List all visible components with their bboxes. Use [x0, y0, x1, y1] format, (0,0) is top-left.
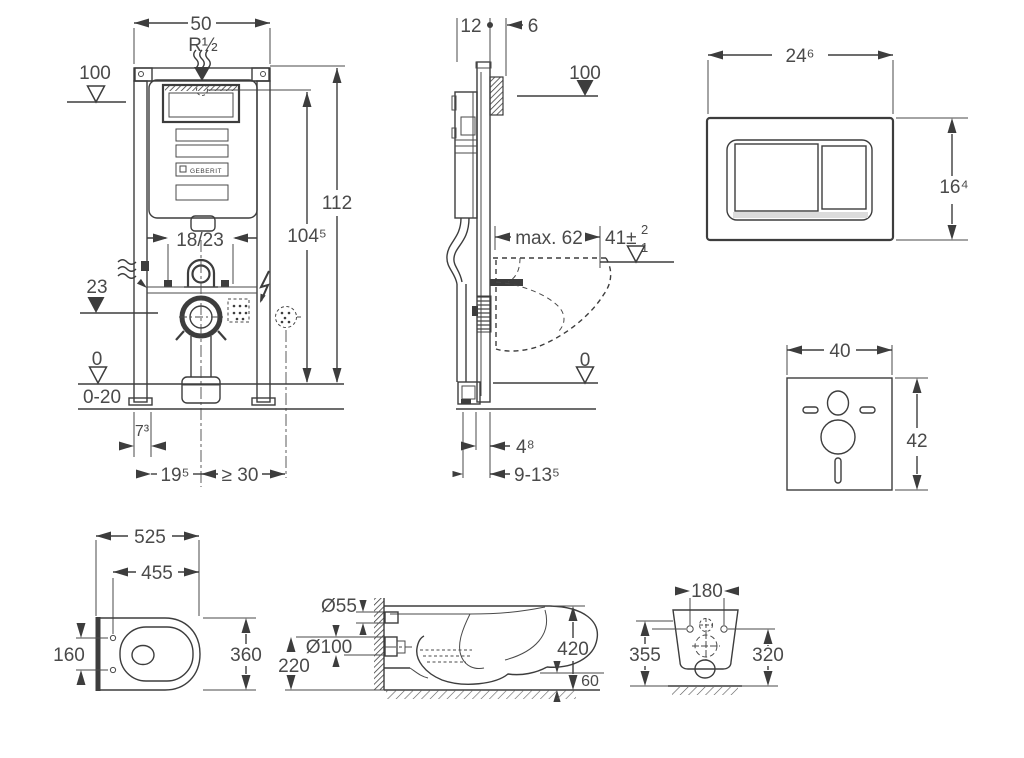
level-supply-front: 100	[67, 63, 126, 102]
dim-mat-height: 42	[895, 378, 928, 490]
flush-button-small	[822, 146, 866, 209]
level-marker-filled-icon	[88, 297, 105, 313]
total-height-label: 112	[322, 193, 352, 214]
mat-center-cutout	[821, 420, 855, 454]
dim-mat-width: 40	[787, 341, 892, 375]
dim-rear-holes: 180	[675, 581, 739, 625]
mat-width-label: 40	[829, 341, 850, 362]
threaded-rod	[477, 296, 491, 332]
dim-rear-left-height: 355	[629, 621, 668, 686]
level-marker-open-icon	[88, 86, 105, 102]
rear-bolt-hole	[687, 626, 693, 632]
bowl-trap-opening	[132, 646, 154, 665]
floor-gap-label: 60	[581, 673, 599, 690]
bowl-width-label: 360	[230, 645, 262, 666]
supply-thread-label: R½	[188, 35, 218, 56]
dim-outlet-offset: 19⁵	[136, 465, 216, 486]
rear-left-height-label: 355	[629, 645, 661, 666]
frame-side-view: 12 6	[447, 16, 674, 486]
level-marker-open-icon	[90, 367, 107, 383]
level-marker-open-icon	[577, 367, 594, 383]
clearance-label: ≥ 30	[222, 465, 259, 486]
bowl-depth-label: 525	[134, 527, 166, 548]
fixation-point-mark	[228, 299, 249, 322]
seat-bolt-hole	[110, 635, 115, 640]
socket-position-mark	[276, 307, 302, 328]
concealed-cistern: GEBERIT	[149, 80, 257, 231]
dim-pipe-range: 9-13⁵	[453, 465, 560, 486]
floor-hatch	[386, 690, 576, 699]
mat-top-cutout	[828, 391, 849, 415]
dim-rear-right-height: 320	[742, 629, 784, 686]
rear-inlet-mark	[699, 618, 713, 632]
rear-right-height-label: 320	[752, 645, 784, 666]
inner-height-label: 104⁵	[287, 226, 327, 247]
bowl-side-view: Ø55 Ø100 220 420	[278, 596, 604, 702]
dim-rim-height: 41± 2 1	[600, 222, 674, 262]
dim-foot-depth: 7³	[119, 412, 166, 457]
dim-seat-depth: 455	[113, 563, 199, 634]
pipe-range-label: 9-13⁵	[514, 465, 560, 486]
level-marker-filled-icon	[577, 80, 594, 96]
level-supply-side: 100	[517, 63, 601, 96]
bowl-outline-dashed	[493, 258, 611, 351]
floor-range-label: 0-20	[83, 387, 121, 408]
outlet-connector	[385, 637, 397, 656]
rear-holes-label: 180	[691, 581, 723, 602]
pipe-offset-label: 4⁸	[516, 437, 535, 458]
max-width-label: max. 62	[515, 228, 583, 249]
dim-flush-offset: 18/23	[147, 230, 257, 284]
plate-width-label: 24⁶	[786, 46, 815, 67]
dim-plate-height: 16⁴	[896, 118, 969, 240]
rear-bolt-hole	[721, 626, 727, 632]
rear-outlet-mark	[692, 632, 720, 660]
brand-label: GEBERIT	[190, 168, 222, 175]
seat-bolt-hole	[110, 667, 115, 672]
flush-button-large	[735, 144, 818, 211]
dim-max-width: max. 62	[495, 226, 600, 268]
bowl-height-label: 420	[557, 639, 589, 660]
seat-holes-label: 160	[53, 645, 85, 666]
plate-height-label: 16⁴	[939, 177, 968, 198]
frame-width-label: 50	[190, 14, 211, 35]
frame-rail-side	[458, 62, 503, 404]
bowl-top-body	[97, 618, 200, 690]
dim-total-height: 112	[270, 66, 352, 383]
mat-height-label: 42	[906, 431, 927, 452]
mat-body	[787, 378, 892, 490]
frame-front-view: 50 R½ 100	[67, 14, 352, 487]
foot-depth-label: 7³	[135, 423, 150, 440]
installation-dimension-drawing: 50 R½ 100	[0, 0, 1024, 758]
bowl-seat-opening	[120, 627, 193, 681]
mat-left-slot	[803, 407, 818, 413]
dim-frame-depth: 12 6	[457, 16, 538, 76]
insulation-mat-view: 40 42	[787, 341, 928, 490]
dim-bowl-width: 360	[203, 618, 262, 690]
electrical-connection-icon	[257, 271, 269, 304]
cistern-side	[447, 92, 477, 382]
outlet-height-label: 220	[278, 656, 310, 677]
inlet-label: Ø55	[321, 596, 357, 617]
mounting-bracket	[490, 279, 523, 286]
rear-floor-hatch	[672, 687, 738, 695]
outlet-level-label: 23	[86, 277, 107, 298]
outlet-offset-label: 19⁵	[160, 465, 189, 486]
technical-drawing-page: 50 R½ 100	[0, 0, 1024, 758]
bowl-rear-view: 180 355	[629, 581, 784, 695]
front-offset-label: 6	[528, 16, 539, 37]
supply-fitting	[164, 260, 229, 287]
dim-plate-width: 24⁶	[708, 46, 893, 114]
flush-plate-recess	[727, 140, 872, 220]
mat-bottom-slot	[835, 458, 841, 483]
dim-inner-height: 104⁵	[287, 92, 327, 383]
wall-anchor-plate	[490, 77, 503, 115]
bowl-top-view: 525 455 160 360	[53, 527, 262, 691]
frame-depth-label: 12	[460, 16, 481, 37]
flow-direction-icon	[194, 67, 210, 81]
rim-tol-plus-label: 2	[641, 222, 648, 237]
supply-level-label: 100	[79, 63, 111, 84]
flush-offset-label: 18/23	[176, 230, 224, 251]
mat-right-slot	[860, 407, 875, 413]
flush-plate-view: 24⁶ 16⁴	[707, 46, 969, 240]
seat-depth-label: 455	[141, 563, 173, 584]
